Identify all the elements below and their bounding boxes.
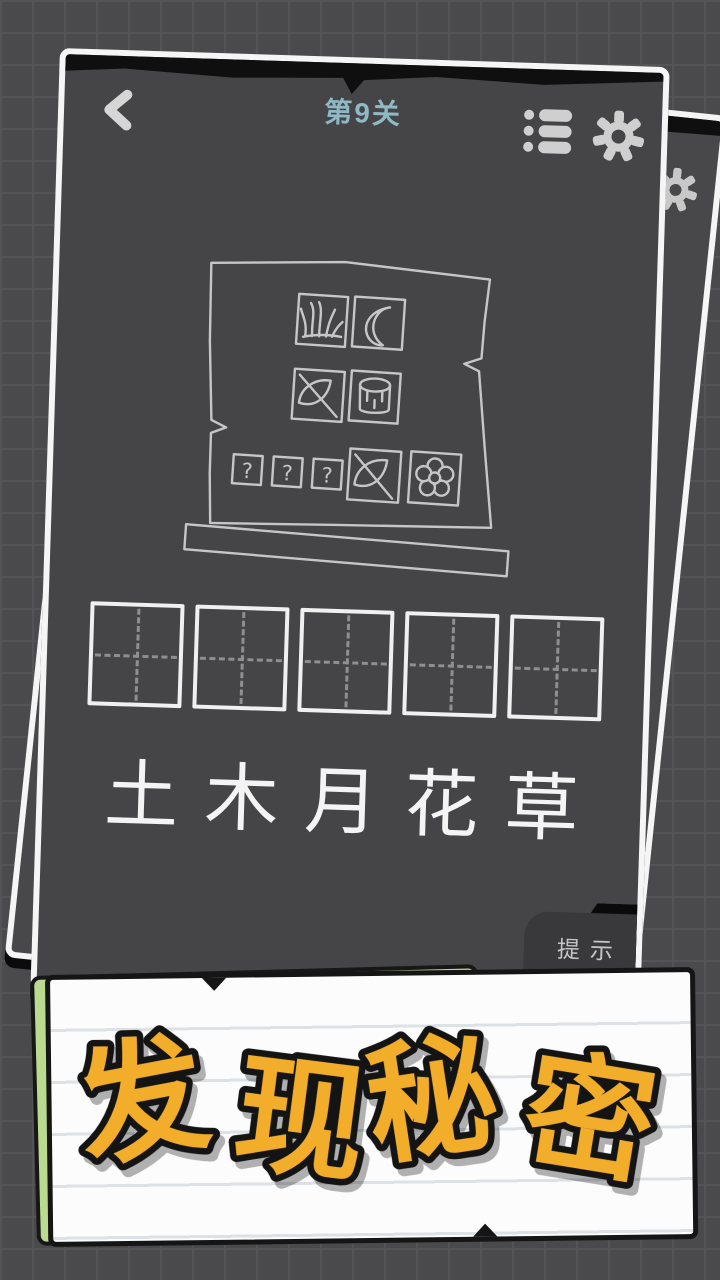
puzzle-board-drawing: ? ? ? [176,252,531,585]
ad-banner-art: 发现秘密 [50,972,693,1242]
answer-slot[interactable] [87,601,184,708]
ad-banner-text: 发现秘密 [64,1009,681,1210]
settings-button[interactable] [591,109,647,165]
answer-slot[interactable] [297,608,394,715]
clue-character-row: 土 木 月 花 草 [41,754,641,854]
level-card: 第9关 [30,48,669,1009]
answer-slot[interactable] [402,611,499,718]
leaf-icon [299,375,338,417]
answer-slot-row [87,601,604,721]
ad-banner[interactable]: 发现秘密 [45,967,698,1247]
board-base [184,524,509,576]
list-icon [524,110,534,120]
clue-character[interactable]: 月 [303,762,380,846]
clue-character[interactable]: 花 [403,765,480,849]
answer-slot[interactable] [507,614,604,721]
leaf-icon [354,454,393,498]
bucket-icon [359,378,390,413]
question-mark: ? [321,463,333,487]
question-mark: ? [241,459,253,483]
answer-slot[interactable] [192,605,289,712]
moon-icon [366,307,390,346]
game-screen: { "header": { "title": "第9关" }, "icons":… [0,0,720,1280]
grass-icon [300,302,343,338]
question-mark: ? [281,461,293,485]
clue-character[interactable]: 土 [103,756,180,840]
clue-character[interactable]: 草 [503,768,580,852]
levels-list-button[interactable] [523,109,576,159]
hint-button-label: 提示 [523,929,648,967]
flower-icon [416,458,454,496]
clue-character[interactable]: 木 [203,759,280,843]
